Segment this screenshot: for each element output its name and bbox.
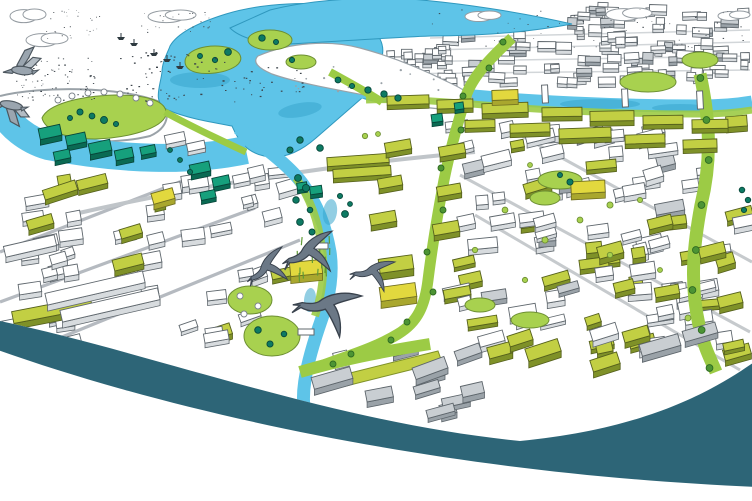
flock-dot <box>50 18 51 19</box>
building-roof <box>310 185 323 195</box>
flock-dot <box>276 67 278 68</box>
building-roof <box>701 38 713 46</box>
building-roof <box>682 179 699 190</box>
flock-dot <box>677 45 678 46</box>
flock-dot <box>69 81 70 82</box>
cloud-puff <box>41 33 68 44</box>
building-roof <box>571 180 606 194</box>
flock-dot <box>200 94 202 95</box>
tree-icon <box>281 331 287 337</box>
building-side <box>437 65 446 69</box>
flock-dot <box>583 21 584 22</box>
flock-dot <box>706 35 707 36</box>
flock-dot <box>87 88 88 89</box>
tree-icon <box>395 95 401 101</box>
sand-dot <box>409 73 411 75</box>
building-roof <box>741 53 750 60</box>
tree-icon <box>259 35 265 41</box>
flock-dot <box>460 41 461 42</box>
flock-dot <box>156 67 158 68</box>
flock-dot <box>178 97 179 98</box>
flock-dot <box>32 97 34 98</box>
flock-dot <box>174 57 176 58</box>
reed <box>301 237 302 245</box>
cloud-puff <box>165 10 196 20</box>
flock-dot <box>294 78 295 79</box>
flock-dot <box>58 58 59 59</box>
flock-dot <box>173 17 174 18</box>
flock-dot <box>47 38 48 39</box>
flock-dot <box>22 96 23 97</box>
flock-dot <box>193 17 194 18</box>
flock-dot <box>78 13 79 14</box>
flock-dot <box>126 88 128 89</box>
tree-icon <box>745 197 750 202</box>
tree-icon <box>297 219 304 226</box>
flock-dot <box>268 67 270 68</box>
flock-dot <box>88 69 89 70</box>
flock-dot <box>300 73 302 74</box>
tree-icon <box>297 137 303 143</box>
tree-icon <box>705 157 712 164</box>
flock-dot <box>167 98 169 99</box>
tree-icon <box>706 365 713 372</box>
tree-icon <box>741 207 746 212</box>
sand-dot <box>337 90 339 92</box>
flock-dot <box>138 86 140 87</box>
park-patch <box>465 298 495 312</box>
flock-dot <box>439 13 440 14</box>
tree-icon <box>658 268 663 273</box>
building-roof <box>713 46 728 51</box>
flock-dot <box>223 80 225 82</box>
flock-dot <box>168 95 170 96</box>
tree-icon <box>100 116 107 123</box>
flock-dot <box>160 15 161 16</box>
tree-icon <box>557 172 562 177</box>
flock-dot <box>32 100 33 101</box>
tree-icon <box>522 277 527 282</box>
building-roof <box>669 57 677 63</box>
tree-icon <box>404 319 410 325</box>
tree-icon <box>237 293 243 299</box>
flock-dot <box>296 70 297 71</box>
flock-dot <box>55 87 56 88</box>
flock-dot <box>201 62 203 63</box>
flock-dot <box>740 26 741 27</box>
sand-dot <box>400 69 402 71</box>
tree-icon <box>698 327 705 334</box>
flock-dot <box>72 70 73 71</box>
flock-dot <box>303 86 305 87</box>
flock-dot <box>52 88 53 89</box>
flock-dot <box>236 88 237 89</box>
tree-icon <box>703 117 710 124</box>
building-roof <box>578 12 590 17</box>
building-roof <box>589 25 602 33</box>
tree-icon <box>273 39 278 44</box>
flock-dot <box>517 40 518 41</box>
flock-dot <box>696 18 697 19</box>
flock-dot <box>260 83 261 84</box>
building-roof <box>438 46 446 50</box>
flock-dot <box>533 38 534 39</box>
tree-icon <box>607 252 612 257</box>
flock-dot <box>82 96 84 97</box>
flock-dot <box>249 83 250 84</box>
tree-icon <box>198 54 203 59</box>
flock-dot <box>262 89 263 90</box>
flock-dot <box>96 17 97 18</box>
park-patch <box>620 72 676 92</box>
tree-icon <box>289 57 294 62</box>
tree-icon <box>241 311 247 317</box>
flock-dot <box>640 9 641 10</box>
flock-dot <box>29 93 30 94</box>
building-roof <box>677 25 687 31</box>
flock-dot <box>652 21 653 22</box>
flock-dot <box>120 58 122 59</box>
flock-dot <box>208 27 209 28</box>
flock-dot <box>281 91 283 92</box>
flock-dot <box>43 84 44 85</box>
tree-icon <box>335 77 341 83</box>
tree-icon <box>317 145 324 152</box>
flock-dot <box>494 40 495 41</box>
building-roof <box>514 32 526 39</box>
flock-dot <box>69 71 71 72</box>
tree-icon <box>302 184 309 191</box>
flock-dot <box>93 92 95 93</box>
flock-dot <box>91 61 92 62</box>
flock-dot <box>17 95 18 96</box>
flock-dot <box>36 65 37 66</box>
tree-icon <box>85 90 91 96</box>
tree-icon <box>293 197 299 203</box>
building-roof <box>715 70 728 75</box>
flock-dot <box>224 62 225 63</box>
building-roof <box>557 77 567 84</box>
tree-icon <box>342 211 349 218</box>
bridge <box>298 329 314 335</box>
tree-icon <box>739 187 745 193</box>
tree-icon <box>178 158 183 163</box>
tree-icon <box>365 87 371 93</box>
flock-dot <box>151 72 153 73</box>
bay-island <box>248 30 292 50</box>
building-side <box>514 71 527 75</box>
flock-dot <box>457 42 458 43</box>
flock-dot <box>93 83 94 84</box>
sand-dot <box>433 78 435 80</box>
flock-dot <box>508 23 509 24</box>
flock-dot <box>189 13 190 14</box>
building-roof <box>454 102 464 110</box>
flock-dot <box>149 68 151 69</box>
tree-icon <box>337 193 342 198</box>
flock-dot <box>62 11 63 12</box>
flock-dot <box>717 23 718 24</box>
flock-dot <box>64 27 65 28</box>
flock-dot <box>222 85 224 86</box>
flock-dot <box>22 87 23 88</box>
flock-dot <box>528 24 529 25</box>
flock-dot <box>604 27 605 28</box>
tree-icon <box>55 97 61 103</box>
flock-dot <box>234 102 235 103</box>
building-side <box>653 29 664 33</box>
flock-dot <box>163 16 164 17</box>
building-roof <box>556 42 572 50</box>
tree-icon <box>689 287 696 294</box>
flock-dot <box>160 62 161 63</box>
flock-dot <box>209 18 210 19</box>
flock-dot <box>25 79 26 80</box>
flock-dot <box>144 13 145 14</box>
flock-dot <box>637 22 638 23</box>
flock-dot <box>593 40 594 41</box>
flock-dot <box>91 20 92 21</box>
flock-dot <box>58 69 59 70</box>
flock-dot <box>169 72 171 73</box>
cloud-puff <box>23 9 46 20</box>
tree-icon <box>698 202 705 209</box>
flock-dot <box>67 77 68 78</box>
tree-icon <box>309 229 315 235</box>
masterplan-illustration <box>0 0 752 501</box>
building-roof <box>510 123 550 133</box>
flock-dot <box>155 52 157 53</box>
wetland-park <box>244 316 300 356</box>
building-roof <box>387 51 395 57</box>
flock-dot <box>45 75 46 76</box>
flock-dot <box>145 73 146 74</box>
building-roof <box>649 5 666 13</box>
building-roof <box>609 146 623 158</box>
flock-dot <box>669 23 670 24</box>
tree-icon <box>692 247 699 254</box>
flock-dot <box>62 35 63 36</box>
tree-icon <box>607 202 613 208</box>
flock-dot <box>131 85 133 86</box>
building-side <box>423 64 432 68</box>
flock-dot <box>642 27 644 28</box>
flock-dot <box>162 20 163 21</box>
flock-dot <box>51 70 52 71</box>
flock-dot <box>53 95 54 96</box>
flock-dot <box>537 15 538 16</box>
flock-dot <box>87 30 88 31</box>
flock-dot <box>192 13 193 14</box>
flock-dot <box>188 55 189 56</box>
tree-icon <box>577 217 583 223</box>
building-roof <box>608 54 622 62</box>
flock-dot <box>514 28 515 29</box>
flock-dot <box>234 81 235 82</box>
sand-dot <box>323 77 325 79</box>
flock-dot <box>16 81 17 82</box>
flock-dot <box>485 46 486 47</box>
flock-dot <box>210 21 211 22</box>
flock-dot <box>205 15 206 16</box>
building-roof <box>489 72 505 80</box>
tree-icon <box>117 91 123 97</box>
building-roof <box>631 247 645 259</box>
tree-icon <box>89 113 95 119</box>
tree-icon <box>472 247 477 252</box>
flock-dot <box>497 33 498 34</box>
flock-dot <box>64 65 66 66</box>
flock-dot <box>90 18 91 19</box>
flock-dot <box>185 29 186 30</box>
flock-dot <box>57 95 59 96</box>
building-side <box>577 36 584 40</box>
flock-dot <box>147 29 148 30</box>
flock-dot <box>178 14 179 15</box>
flock-dot <box>244 77 246 78</box>
tree-icon <box>255 303 261 309</box>
flock-dot <box>190 31 191 32</box>
building-roof <box>577 68 592 73</box>
flock-dot <box>166 93 167 94</box>
flock-dot <box>727 11 728 12</box>
tree-icon <box>255 327 262 334</box>
flock-dot <box>160 90 161 91</box>
flock-dot <box>90 31 91 32</box>
tree-icon <box>388 337 394 343</box>
flock-dot <box>194 63 196 64</box>
tree-icon <box>101 89 107 95</box>
flock-dot <box>537 46 538 47</box>
flock-dot <box>621 44 622 45</box>
flock-dot <box>41 61 42 62</box>
flock-dot <box>45 94 46 95</box>
flock-dot <box>249 80 251 81</box>
tree-icon <box>187 169 192 174</box>
bridge <box>542 85 549 103</box>
masterplan-canvas <box>0 0 752 501</box>
flock-dot <box>41 85 42 86</box>
flock-dot <box>743 40 744 41</box>
building-roof <box>683 139 717 149</box>
deep-water <box>170 72 230 88</box>
flock-dot <box>574 47 575 48</box>
building-roof <box>590 111 634 122</box>
flock-dot <box>178 27 179 28</box>
flock-dot <box>147 32 148 33</box>
building-roof <box>653 24 664 29</box>
flock-dot <box>588 30 589 31</box>
tree-icon <box>307 207 313 213</box>
park-patch <box>530 191 560 205</box>
flock-dot <box>80 89 81 90</box>
flock-dot <box>174 98 176 99</box>
flock-dot <box>251 71 253 72</box>
flock-dot <box>682 44 683 45</box>
flock-dot <box>204 12 205 13</box>
flock-dot <box>90 76 91 77</box>
flock-dot <box>159 28 160 29</box>
flock-dot <box>94 77 96 78</box>
flock-dot <box>89 96 90 97</box>
flock-dot <box>21 85 22 86</box>
building-roof <box>726 115 748 127</box>
flock-dot <box>559 23 560 24</box>
flock-dot <box>145 52 147 53</box>
building-roof <box>627 67 642 73</box>
flock-dot <box>251 94 252 95</box>
building-roof <box>595 266 614 278</box>
flock-dot <box>610 26 611 27</box>
building-roof <box>404 52 413 59</box>
flock-dot <box>67 83 69 84</box>
flock-dot <box>243 89 244 90</box>
building-roof <box>624 52 639 60</box>
flock-dot <box>23 85 24 86</box>
tree-icon <box>113 121 118 126</box>
flock-dot <box>607 9 608 10</box>
building-roof <box>207 290 227 302</box>
flock-dot <box>209 27 210 28</box>
tree-icon <box>362 133 367 138</box>
building-roof <box>492 192 505 201</box>
flock-dot <box>63 100 65 101</box>
flock-dot <box>63 58 64 59</box>
flock-dot <box>694 27 695 28</box>
flock-dot <box>299 91 301 92</box>
building-roof <box>741 60 748 66</box>
flock-dot <box>173 60 175 61</box>
tree-icon <box>77 109 83 115</box>
flock-dot <box>134 63 136 64</box>
flock-dot <box>93 76 94 77</box>
flock-dot <box>127 93 129 94</box>
building-roof <box>598 77 615 84</box>
tree-icon <box>430 289 436 295</box>
tree-icon <box>697 75 704 82</box>
flock-dot <box>520 19 521 20</box>
tree-icon <box>287 147 293 153</box>
flock-dot <box>147 84 148 85</box>
building-roof <box>722 54 737 58</box>
flock-dot <box>46 31 47 32</box>
flock-dot <box>596 47 597 48</box>
building-roof <box>476 195 489 205</box>
building-roof <box>514 66 527 71</box>
flock-dot <box>723 38 724 39</box>
flock-dot <box>77 94 78 95</box>
flock-dot <box>698 31 699 32</box>
tree-icon <box>502 207 508 213</box>
building-roof <box>445 56 452 61</box>
building-side <box>603 69 619 73</box>
flock-dot <box>660 26 661 27</box>
tree-icon <box>685 315 691 321</box>
flock-dot <box>152 88 154 89</box>
tree-icon <box>381 91 387 97</box>
flock-dot <box>53 12 54 13</box>
tree-icon <box>348 202 353 207</box>
building-roof <box>516 42 530 47</box>
flock-dot <box>225 90 227 91</box>
flock-dot <box>136 92 137 93</box>
flock-dot <box>35 87 36 88</box>
building-roof <box>616 37 625 44</box>
tree-icon <box>542 237 548 243</box>
park-patch <box>228 286 272 314</box>
tree-icon <box>424 249 430 255</box>
building-roof <box>625 134 665 144</box>
